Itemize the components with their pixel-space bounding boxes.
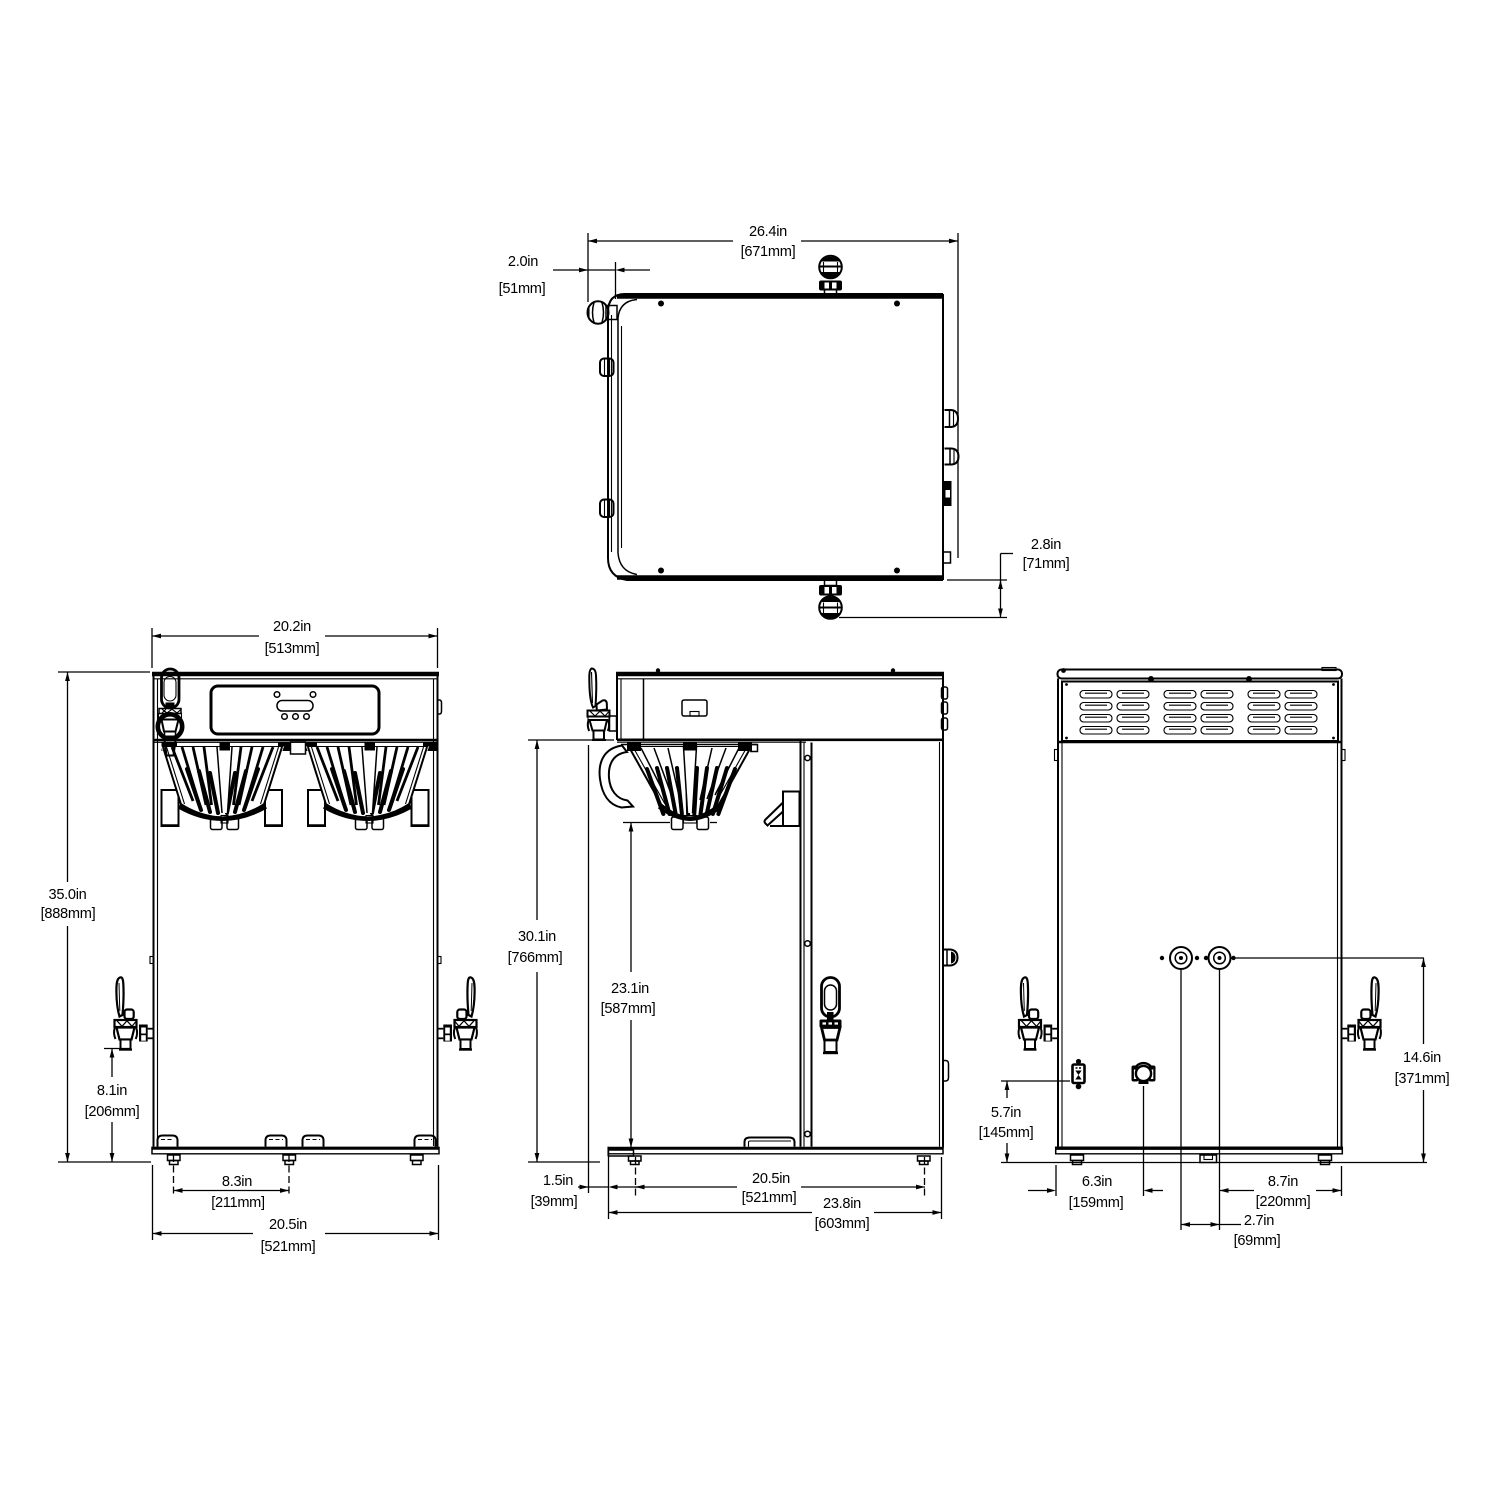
svg-text:[371mm]: [371mm] bbox=[1395, 1071, 1450, 1087]
svg-text:[671mm]: [671mm] bbox=[741, 244, 796, 260]
svg-text:20.2in: 20.2in bbox=[273, 619, 311, 635]
svg-text:[513mm]: [513mm] bbox=[265, 641, 320, 657]
svg-text:[71mm]: [71mm] bbox=[1023, 556, 1070, 572]
svg-text:8.3in: 8.3in bbox=[222, 1174, 252, 1190]
svg-text:[587mm]: [587mm] bbox=[601, 1001, 656, 1017]
svg-text:30.1in: 30.1in bbox=[518, 929, 556, 945]
svg-text:23.8in: 23.8in bbox=[823, 1196, 861, 1212]
svg-text:[521mm]: [521mm] bbox=[261, 1239, 316, 1255]
svg-text:14.6in: 14.6in bbox=[1403, 1050, 1441, 1066]
svg-text:2.7in: 2.7in bbox=[1244, 1213, 1274, 1229]
svg-text:5.7in: 5.7in bbox=[991, 1105, 1021, 1121]
svg-text:8.7in: 8.7in bbox=[1268, 1174, 1298, 1190]
svg-text:35.0in: 35.0in bbox=[49, 887, 87, 903]
svg-text:[220mm]: [220mm] bbox=[1256, 1194, 1311, 1210]
svg-text:[888mm]: [888mm] bbox=[41, 906, 96, 922]
svg-text:2.0in: 2.0in bbox=[508, 254, 538, 270]
svg-text:[766mm]: [766mm] bbox=[508, 950, 563, 966]
svg-text:20.5in: 20.5in bbox=[752, 1171, 790, 1187]
svg-text:26.4in: 26.4in bbox=[749, 224, 787, 240]
svg-text:2.8in: 2.8in bbox=[1031, 537, 1061, 553]
svg-text:[51mm]: [51mm] bbox=[499, 281, 546, 297]
svg-text:1.5in: 1.5in bbox=[543, 1173, 573, 1189]
svg-text:[159mm]: [159mm] bbox=[1069, 1195, 1124, 1211]
svg-text:23.1in: 23.1in bbox=[611, 981, 649, 997]
svg-text:[211mm]: [211mm] bbox=[211, 1195, 265, 1211]
svg-text:[603mm]: [603mm] bbox=[815, 1216, 870, 1232]
svg-text:6.3in: 6.3in bbox=[1082, 1174, 1112, 1190]
svg-text:[39mm]: [39mm] bbox=[531, 1194, 578, 1210]
svg-text:[521mm]: [521mm] bbox=[742, 1190, 797, 1206]
svg-text:[69mm]: [69mm] bbox=[1234, 1233, 1281, 1249]
svg-text:[145mm]: [145mm] bbox=[979, 1125, 1034, 1141]
svg-text:20.5in: 20.5in bbox=[269, 1217, 307, 1233]
svg-text:[206mm]: [206mm] bbox=[85, 1104, 140, 1120]
svg-text:8.1in: 8.1in bbox=[97, 1083, 127, 1099]
